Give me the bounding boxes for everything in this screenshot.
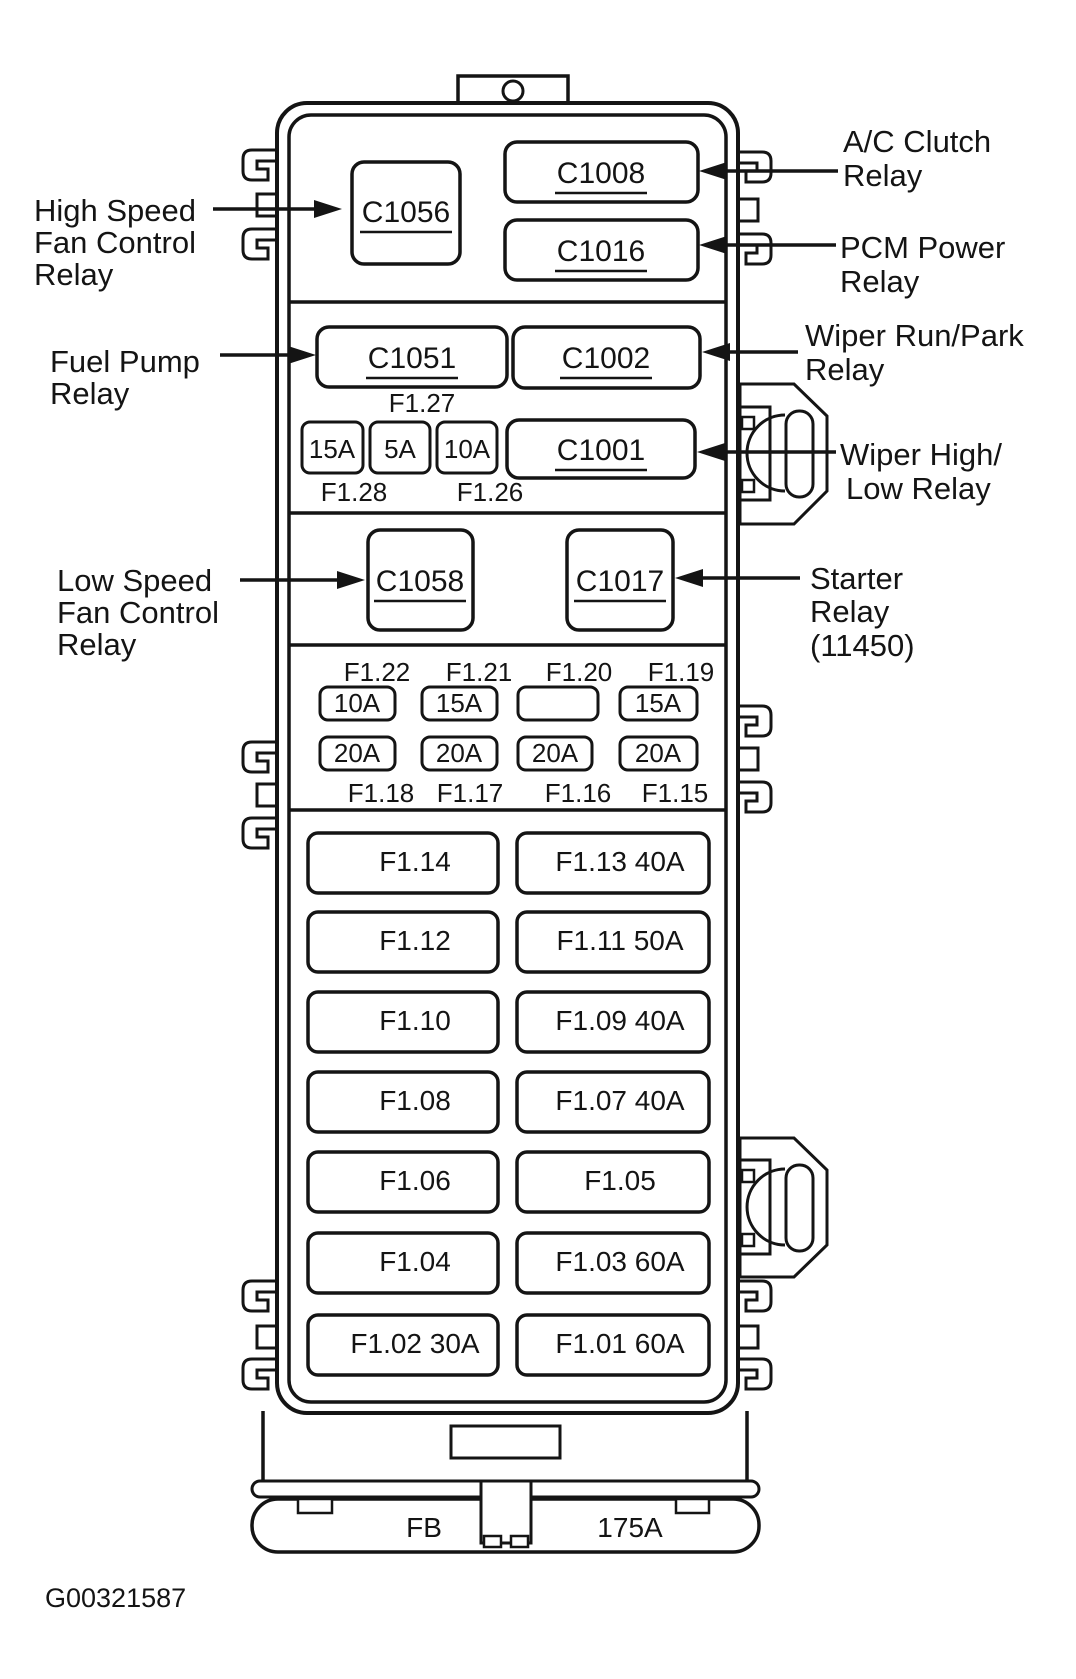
mount-hook-icon [736,706,771,736]
mount-lug-icon [737,199,758,221]
megafuse-center-terminal [481,1481,531,1543]
fuse-position-label-f126: F1.26 [457,477,524,507]
mount-hook-icon [243,818,278,848]
callout-text: (11450) [810,628,915,663]
large-fuse-label: F1.13 40A [555,846,685,877]
mount-hook-icon [736,782,771,812]
relay-label-c1051: C1051 [368,342,456,375]
mount-hook-icon [736,234,771,264]
large-fuse-label: F1.09 40A [555,1005,685,1036]
callout-text: Relay [34,257,114,292]
connector-pin-icon [742,1234,754,1246]
mount-lug-icon [257,1326,278,1348]
fuse-value-label: 15A [635,688,682,718]
fuse-value-label: 10A [444,434,491,464]
callout-text: Relay [57,627,137,662]
mount-hook-icon [243,150,278,180]
connector-pin-icon [742,480,754,492]
mount-lug-icon [257,784,278,806]
fuse-value-label: 15A [436,688,483,718]
large-fuse-label: F1.14 [379,846,451,877]
megafuse-fb-label: FB [406,1512,442,1543]
large-fuse-label: F1.01 60A [555,1328,685,1359]
fuse-position-label-f115: F1.15 [642,778,709,808]
callout-text: Starter [810,561,903,596]
mount-lug-icon [257,194,278,216]
megafuse-notch-icon [298,1499,332,1513]
large-fuse-label: F1.05 [584,1165,656,1196]
base-slot [451,1426,560,1458]
fuse-position-label-f116: F1.16 [545,778,612,808]
mount-lug-icon [737,1326,758,1348]
callout-text: Wiper Run/Park [805,318,1024,353]
relay-label-c1008: C1008 [557,157,645,190]
callout-text: Wiper High/ [840,437,1002,472]
mount-hook-icon [736,1281,771,1311]
mount-hook-icon [736,152,771,182]
megafuse-notch-icon [676,1499,709,1513]
relay-label-c1017: C1017 [576,565,664,598]
connector-oval-icon [786,411,813,497]
callout-text: Low Relay [846,471,991,506]
large-fuse-label: F1.04 [379,1246,451,1277]
callout-text: Fan Control [57,595,219,630]
large-fuse-label: F1.02 30A [350,1328,480,1359]
terminal-foot-icon [484,1536,501,1547]
large-fuse-label: F1.11 50A [556,925,683,956]
callout-wiper-run-park: Wiper Run/Park Relay [702,318,1024,387]
figure-code: G00321587 [45,1583,186,1613]
fuse-box-diagram: FB 175A C1056 C1008 C1016 [0,0,1076,1679]
large-fuse-label: F1.06 [379,1165,451,1196]
relay-label-c1016: C1016 [557,235,645,268]
connector-pin-icon [742,417,754,429]
relay-label-c1001: C1001 [557,434,645,467]
base-assembly: FB 175A [252,1411,759,1552]
mount-hook-icon [243,229,278,259]
fuse-position-label-f121: F1.21 [446,657,513,687]
fuse-value-label: 10A [334,688,381,718]
fuse-value-label: 15A [309,434,356,464]
callout-text: Low Speed [57,563,212,598]
mount-hook-icon [736,1359,771,1389]
connector-oval-icon [786,1165,813,1251]
relay-label-c1002: C1002 [562,342,650,375]
callout-text: Fuel Pump [50,344,200,379]
fuse-position-label-f128: F1.28 [321,477,388,507]
large-fuse-label: F1.07 40A [555,1085,685,1116]
fuse-position-label-f117: F1.17 [437,778,504,808]
callout-text: Relay [805,352,885,387]
callout-text: Relay [810,594,890,629]
fuse-position-label-f119: F1.19 [648,657,715,687]
callout-text: Relay [843,158,923,193]
callout-text: A/C Clutch [843,124,991,159]
fuse-value-label: 5A [384,434,416,464]
mount-hook-icon [243,1281,278,1311]
mount-hook-icon [243,742,278,772]
fuse-value-label: 20A [532,738,579,768]
large-fuse-label: F1.08 [379,1085,451,1116]
relay-label-c1058: C1058 [376,565,464,598]
connector-pin-icon [742,1170,754,1182]
right-connector-upper [740,384,827,524]
fuse-value-label: 20A [334,738,381,768]
callout-text: Fan Control [34,225,196,260]
fuse-position-label-f122: F1.22 [344,657,411,687]
right-connector-lower [740,1138,827,1277]
fuse-box-diagram-page: FB 175A C1056 C1008 C1016 [0,0,1076,1679]
mount-hook-icon [243,1359,278,1389]
terminal-foot-icon [511,1536,528,1547]
left-mount-tabs [243,150,278,1389]
callout-text: Relay [840,264,920,299]
fuse-position-label-f120: F1.20 [546,657,613,687]
callout-text: PCM Power [840,230,1005,265]
large-fuse-label: F1.12 [379,925,451,956]
mount-lug-icon [737,748,758,770]
large-fuse-label: F1.03 60A [555,1246,685,1277]
fuse-value-label: 20A [635,738,682,768]
megafuse-amp-label: 175A [597,1512,663,1543]
fuse-position-label-f118: F1.18 [348,778,415,808]
callout-text: High Speed [34,193,196,228]
large-fuse-label: F1.10 [379,1005,451,1036]
fuse-position-label-f127: F1.27 [389,388,456,418]
relay-label-c1056: C1056 [362,196,450,229]
fuse-value-label: 20A [436,738,483,768]
callout-text: Relay [50,376,130,411]
fuse-slot-empty [518,687,598,720]
